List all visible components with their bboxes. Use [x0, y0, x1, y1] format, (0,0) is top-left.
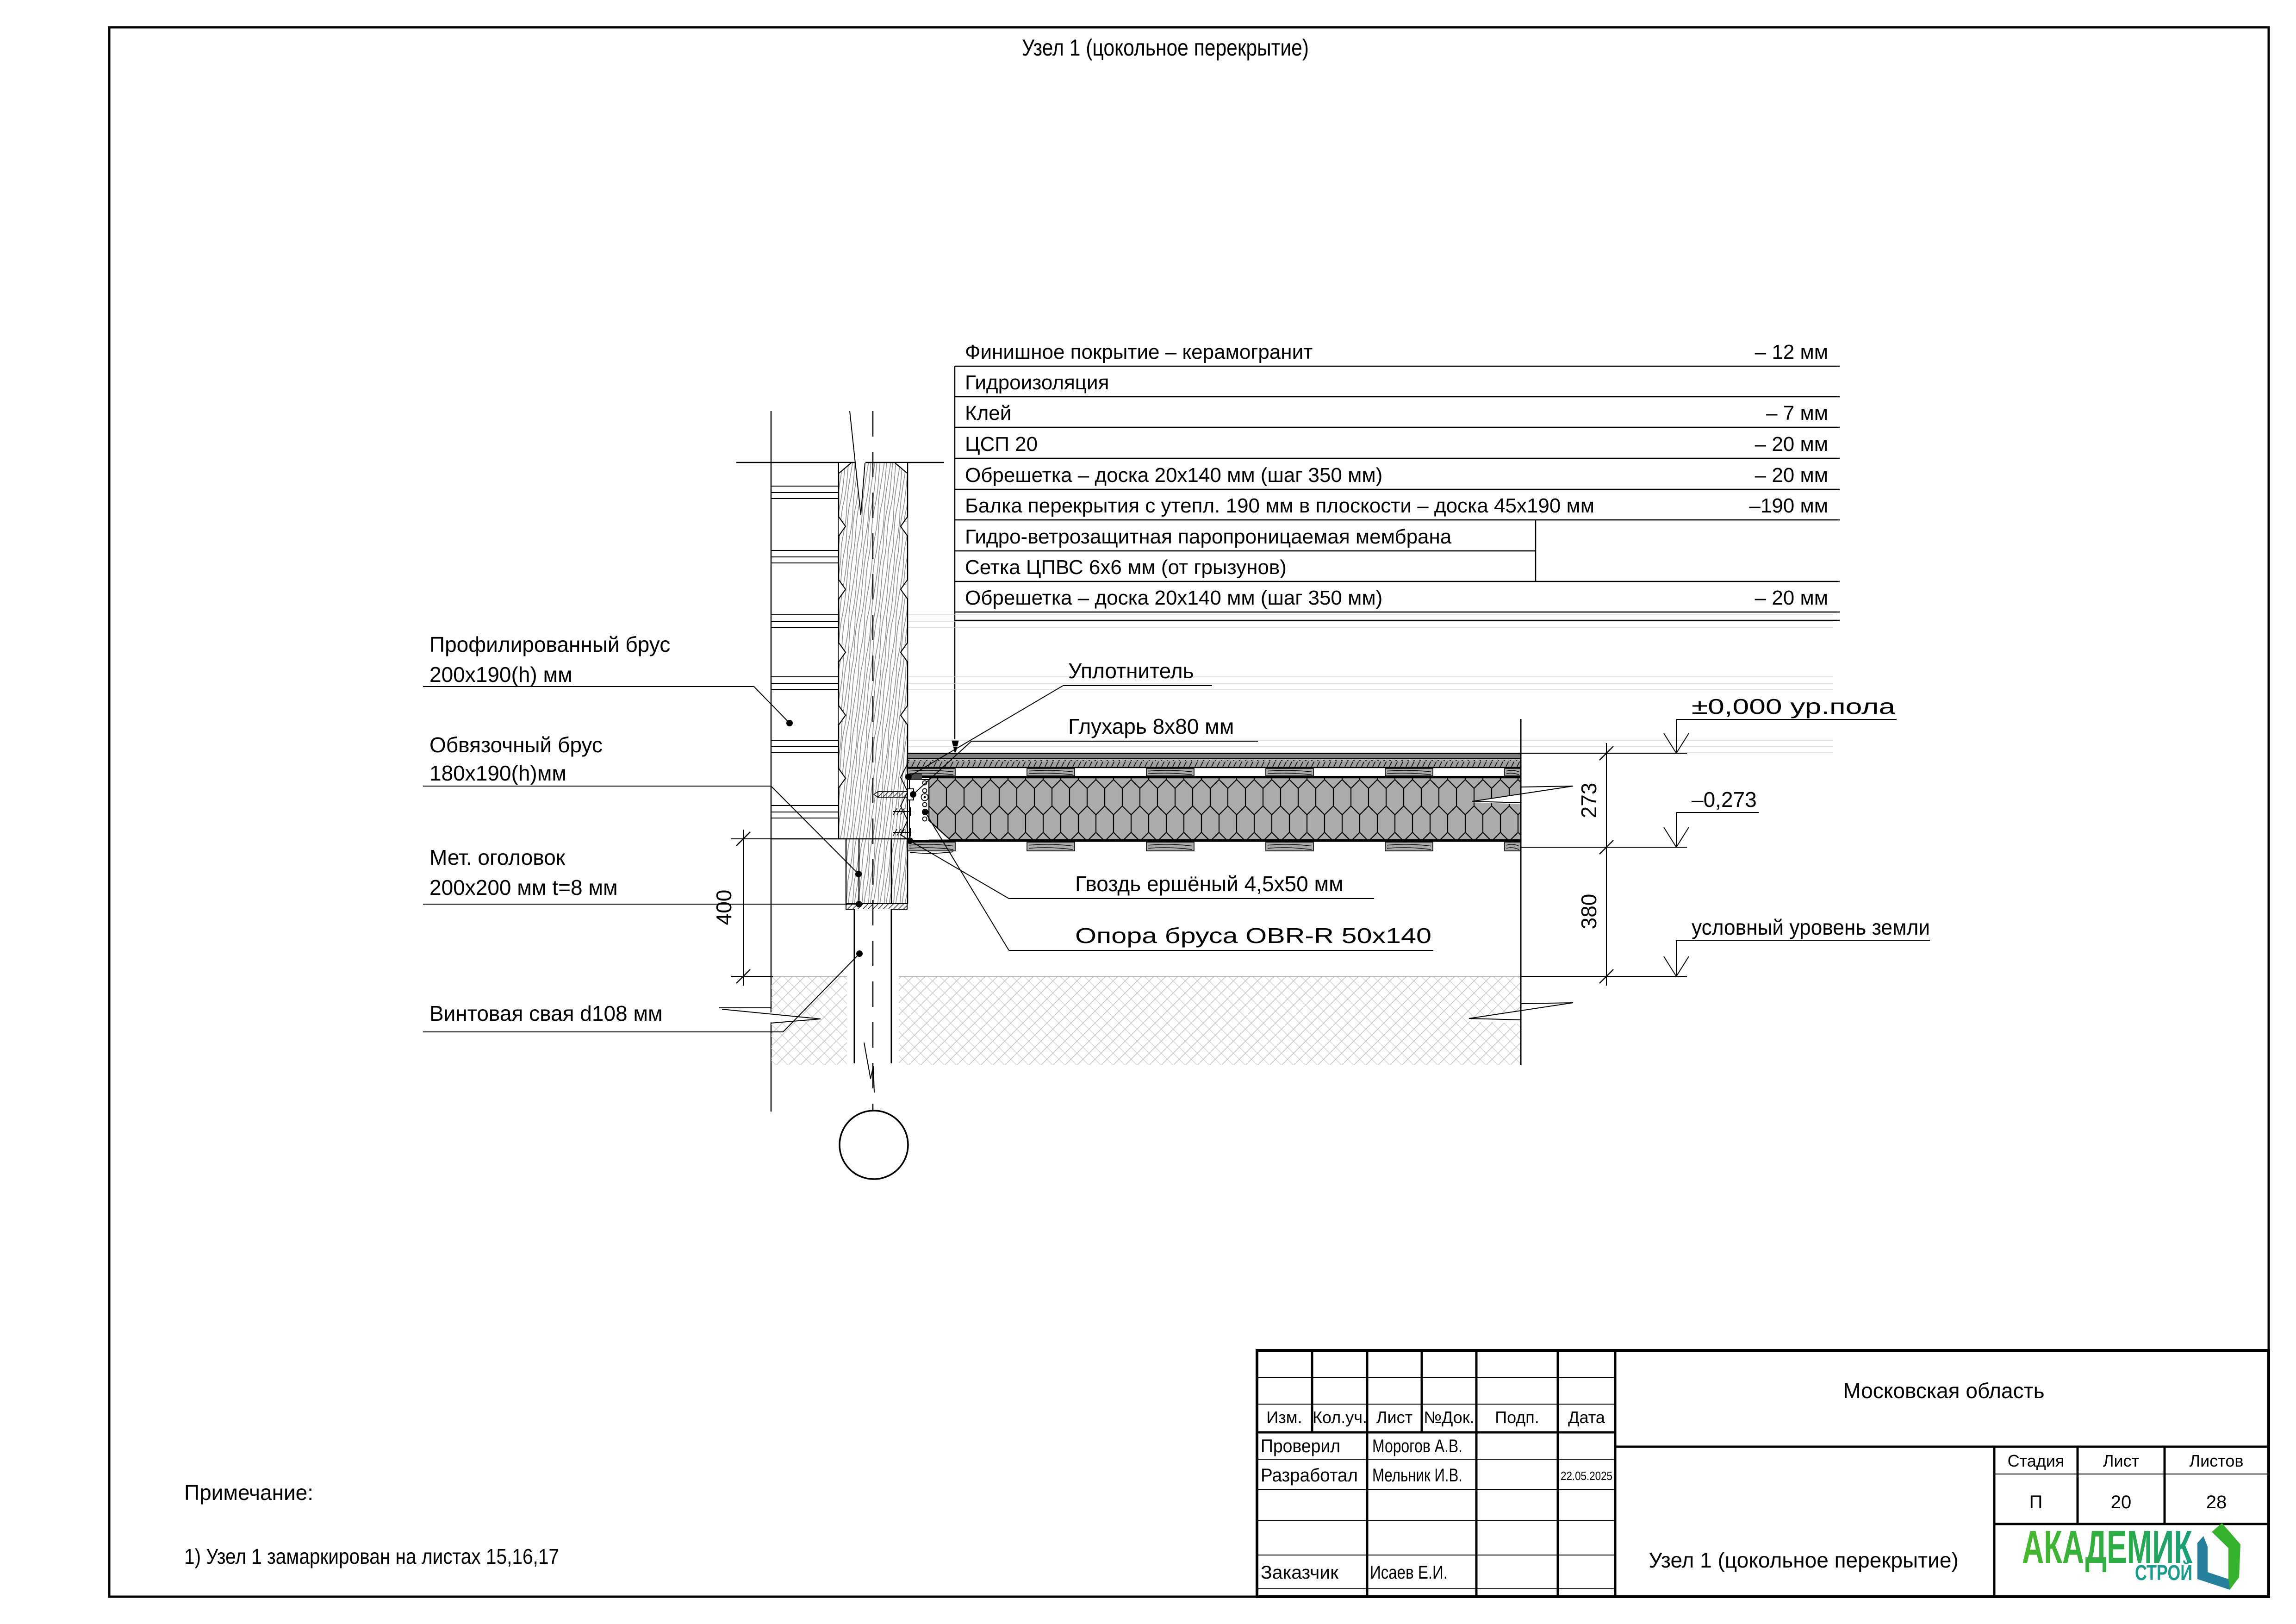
- svg-text:– 7 мм: – 7 мм: [1766, 402, 1828, 425]
- svg-text:Обрешетка – доска 20х140 мм (ш: Обрешетка – доска 20х140 мм (шаг 350 мм): [965, 464, 1382, 487]
- svg-text:Стадия: Стадия: [2008, 1451, 2065, 1470]
- svg-text:Узел 1 (цокольное перекрытие): Узел 1 (цокольное перекрытие): [1022, 35, 1309, 61]
- svg-text:Обвязочный брус: Обвязочный брус: [429, 733, 603, 757]
- svg-text:Балка перекрытия с утепл. 190: Балка перекрытия с утепл. 190 мм в плоск…: [965, 494, 1594, 517]
- svg-text:380: 380: [1577, 894, 1601, 930]
- svg-text:Заказчик: Заказчик: [1261, 1562, 1339, 1583]
- svg-text:Изм.: Изм.: [1266, 1408, 1302, 1427]
- svg-text:22.05.2025: 22.05.2025: [1561, 1469, 1612, 1483]
- svg-text:273: 273: [1577, 783, 1601, 818]
- svg-text:– 20 мм: – 20 мм: [1755, 587, 1828, 609]
- svg-text:200х200 мм t=8 мм: 200х200 мм t=8 мм: [429, 875, 618, 899]
- svg-text:Обрешетка – доска 20х140 мм (ш: Обрешетка – доска 20х140 мм (шаг 350 мм): [965, 587, 1382, 609]
- svg-text:Кол.уч.: Кол.уч.: [1313, 1408, 1367, 1427]
- svg-text:–0,273: –0,273: [1692, 787, 1757, 812]
- svg-text:СТРОЙ: СТРОЙ: [2135, 1561, 2192, 1585]
- svg-text:Разработал: Разработал: [1261, 1465, 1358, 1486]
- svg-text:Подп.: Подп.: [1495, 1408, 1539, 1427]
- svg-text:– 20 мм: – 20 мм: [1755, 433, 1828, 456]
- svg-text:Гидро-ветрозащитная паропрониц: Гидро-ветрозащитная паропроницаемая мемб…: [965, 525, 1452, 548]
- svg-text:Исаев Е.И.: Исаев Е.И.: [1370, 1562, 1448, 1583]
- svg-text:Лист: Лист: [1376, 1408, 1412, 1427]
- svg-text:±0,000 ур.пола: ±0,000 ур.пола: [1692, 694, 1896, 718]
- svg-text:Глухарь 8х80 мм: Глухарь 8х80 мм: [1068, 714, 1234, 738]
- svg-text:Финишное покрытие – керамогран: Финишное покрытие – керамогранит: [965, 341, 1313, 363]
- svg-text:Проверил: Проверил: [1261, 1436, 1340, 1456]
- svg-text:–190 мм: –190 мм: [1749, 494, 1828, 517]
- svg-text:Уплотнитель: Уплотнитель: [1068, 659, 1194, 683]
- svg-text:Профилированный брус: Профилированный брус: [429, 632, 670, 656]
- svg-text:Узел 1 (цокольное перекрытие): Узел 1 (цокольное перекрытие): [1649, 1548, 1958, 1572]
- svg-text:Мельник И.В.: Мельник И.В.: [1372, 1465, 1462, 1486]
- svg-text:№Док.: №Док.: [1424, 1408, 1474, 1427]
- svg-text:ЦСП 20: ЦСП 20: [965, 433, 1038, 456]
- svg-text:Гидроизоляция: Гидроизоляция: [965, 371, 1109, 394]
- svg-text:1) Узел 1 замаркирован на лист: 1) Узел 1 замаркирован на листах 15,16,1…: [184, 1544, 559, 1568]
- svg-text:– 20 мм: – 20 мм: [1755, 464, 1828, 487]
- svg-text:Дата: Дата: [1568, 1408, 1605, 1427]
- svg-text:Морогов А.В.: Морогов А.В.: [1372, 1436, 1462, 1456]
- svg-text:Гвоздь ершёный 4,5х50 мм: Гвоздь ершёный 4,5х50 мм: [1075, 872, 1344, 896]
- svg-text:Винтовая свая d108 мм: Винтовая свая d108 мм: [429, 1001, 663, 1025]
- svg-text:Опора бруса OBR-R 50х140: Опора бруса OBR-R 50х140: [1075, 924, 1431, 948]
- svg-text:20: 20: [2111, 1492, 2132, 1512]
- svg-text:Клей: Клей: [965, 402, 1011, 425]
- svg-text:Московская область: Московская область: [1843, 1379, 2044, 1403]
- svg-text:П: П: [2029, 1492, 2043, 1512]
- svg-text:Мет. оголовок: Мет. оголовок: [429, 845, 566, 869]
- svg-text:условный уровень земли: условный уровень земли: [1692, 915, 1930, 939]
- svg-text:28: 28: [2206, 1492, 2227, 1512]
- svg-text:Лист: Лист: [2103, 1451, 2139, 1470]
- svg-text:180х190(h)мм: 180х190(h)мм: [429, 761, 566, 785]
- svg-text:Примечание:: Примечание:: [184, 1480, 313, 1505]
- svg-text:– 12 мм: – 12 мм: [1755, 341, 1828, 363]
- svg-text:Листов: Листов: [2190, 1451, 2244, 1470]
- svg-text:400: 400: [712, 890, 736, 925]
- svg-text:Сетка ЦПВС 6х6 мм (от грызунов: Сетка ЦПВС 6х6 мм (от грызунов): [965, 556, 1287, 579]
- svg-text:200х190(h) мм: 200х190(h) мм: [429, 662, 572, 687]
